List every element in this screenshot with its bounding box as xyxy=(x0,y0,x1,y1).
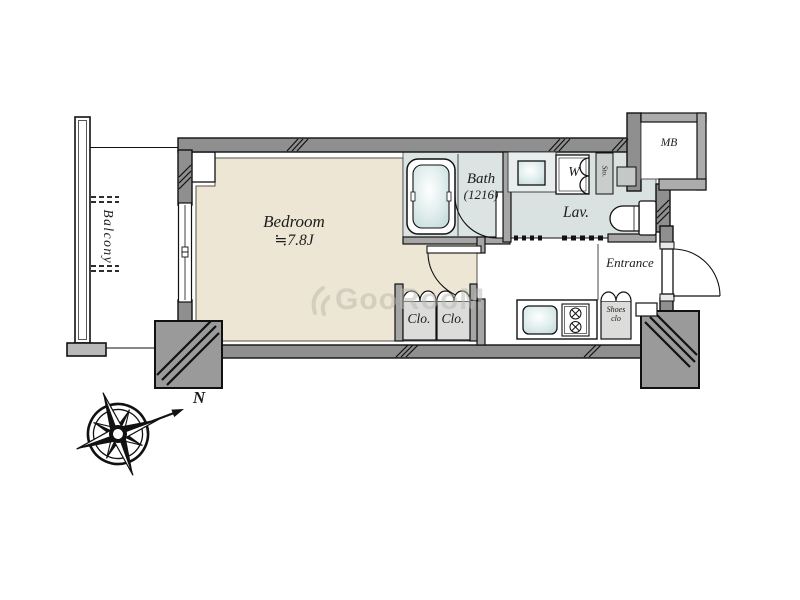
kitchen-counter xyxy=(517,300,597,339)
shoes-closet-bifold-door xyxy=(601,292,631,301)
washbasin-icon xyxy=(518,161,545,185)
meter-box xyxy=(641,113,706,190)
kitchen-sink-icon xyxy=(523,306,557,334)
shoes-closet-line2: clo xyxy=(600,314,632,323)
duct-shaft-box xyxy=(617,167,636,186)
label-storage: Sto. xyxy=(600,157,609,185)
floor-plan: GooRooM Balcony Bedroom ≒7.8J Bath (1216… xyxy=(0,0,800,600)
label-closet2: Clo. xyxy=(436,311,470,327)
window-sliding-door xyxy=(179,203,192,302)
stove-icon xyxy=(562,304,589,336)
label-washer: W xyxy=(562,164,586,180)
bedroom-corner-pillar xyxy=(191,152,215,182)
label-shoes-closet: Shoes clo xyxy=(600,305,632,323)
bedroom-name: Bedroom xyxy=(228,212,360,232)
room-label-balcony: Balcony xyxy=(100,177,116,297)
room-label-entrance: Entrance xyxy=(594,256,666,271)
north-arrow-icon xyxy=(126,409,184,431)
bedroom-size: ≒7.8J xyxy=(228,232,360,250)
compass-north-label: N xyxy=(184,388,214,408)
entrance-door xyxy=(660,242,720,301)
shoes-closet-line1: Shoes xyxy=(600,305,632,314)
room-label-lavatory: Lav. xyxy=(545,204,607,222)
compass-rose-icon xyxy=(62,378,184,491)
room-label-bath: Bath (1216) xyxy=(444,171,518,203)
label-meter-box: MB xyxy=(648,137,690,150)
entrance-cabinet xyxy=(636,303,657,316)
label-closet1: Clo. xyxy=(402,311,436,327)
watermark-logo-icon xyxy=(308,284,330,316)
bath-name: Bath xyxy=(444,171,518,188)
room-label-bedroom: Bedroom ≒7.8J xyxy=(228,212,360,249)
bath-size: (1216) xyxy=(444,188,518,203)
